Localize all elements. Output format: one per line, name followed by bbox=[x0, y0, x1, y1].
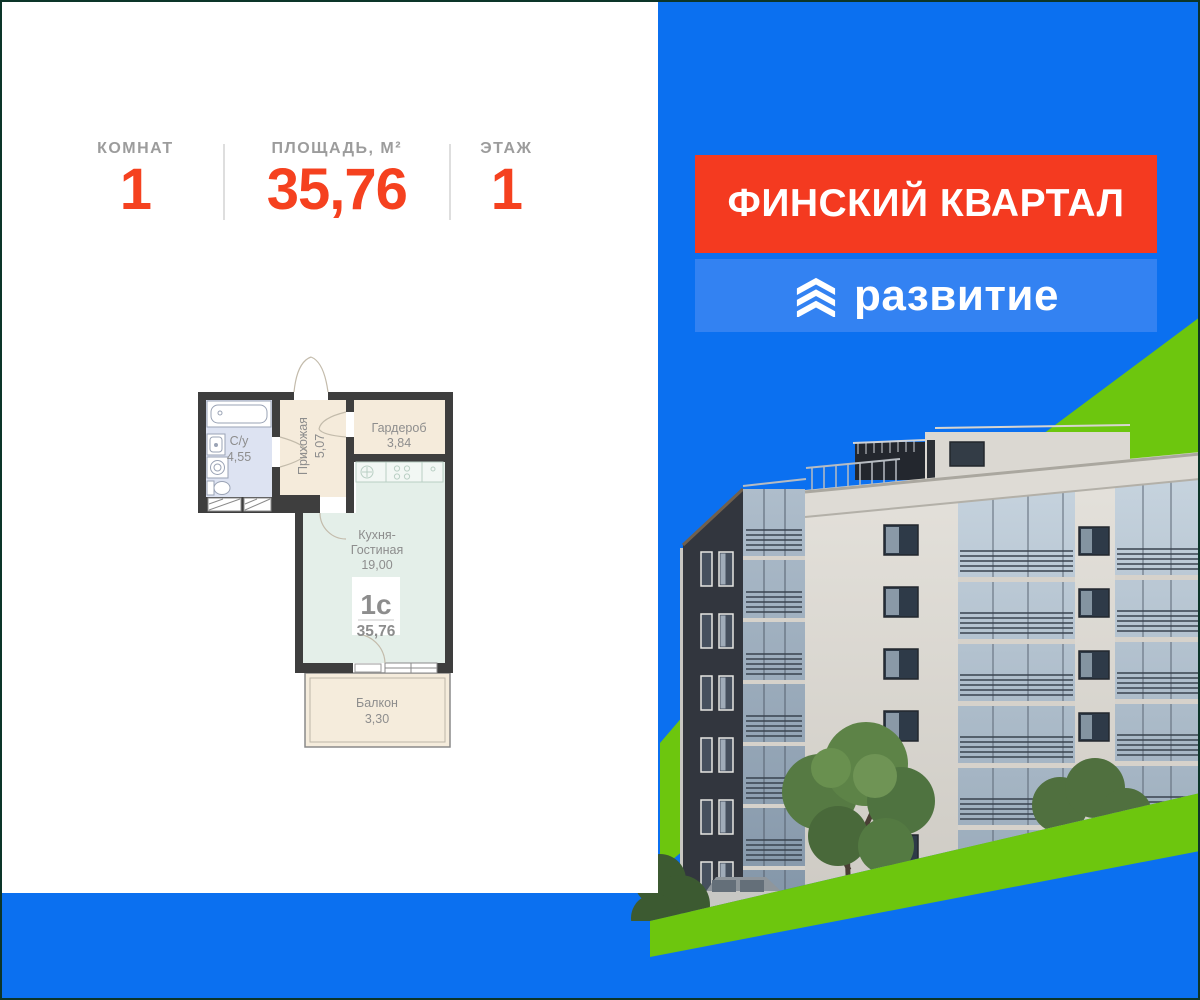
stat-floor-value: 1 bbox=[443, 161, 570, 219]
developer-banner: развитие bbox=[695, 259, 1157, 332]
room-area: 3,84 bbox=[387, 436, 411, 450]
room-area: 3,30 bbox=[365, 712, 389, 726]
stat-rooms-value: 1 bbox=[40, 161, 231, 219]
balcony-window bbox=[355, 663, 437, 673]
room-label: Балкон bbox=[356, 696, 398, 710]
shaft-hatch bbox=[208, 498, 271, 511]
room-balcony bbox=[305, 673, 450, 747]
apartment-total-area: 35,76 bbox=[357, 623, 396, 640]
room-area: 5,07 bbox=[313, 434, 327, 458]
triple-chevron-up-icon bbox=[793, 275, 839, 317]
stats-divider bbox=[223, 144, 225, 220]
project-name-banner: ФИНСКИЙ КВАРТАЛ bbox=[695, 155, 1157, 253]
stat-rooms-label: КОМНАТ bbox=[40, 140, 231, 158]
room-area: 19,00 bbox=[361, 558, 392, 572]
stat-area-value: 35,76 bbox=[231, 161, 443, 219]
developer-name: развитие bbox=[854, 271, 1059, 321]
stat-floor-label: ЭТАЖ bbox=[443, 140, 570, 158]
room-label: С/у bbox=[230, 434, 250, 448]
apartment-badge: 1с 35,76 bbox=[352, 577, 400, 640]
left-panel: КОМНАТ 1 ПЛОЩАДЬ, М² 35,76 ЭТАЖ 1 bbox=[2, 2, 658, 893]
project-name: ФИНСКИЙ КВАРТАЛ bbox=[728, 182, 1125, 226]
flyer-root: КОМНАТ 1 ПЛОЩАДЬ, М² 35,76 ЭТАЖ 1 bbox=[0, 0, 1200, 1000]
floor-plan: С/у 4,55 Прихожая 5,07 Гардероб 3,84 Кух… bbox=[193, 346, 463, 751]
stats-bar: КОМНАТ 1 ПЛОЩАДЬ, М² 35,76 ЭТАЖ 1 bbox=[40, 140, 570, 219]
kitchen-counter bbox=[356, 462, 443, 482]
stat-area-label: ПЛОЩАДЬ, М² bbox=[231, 140, 443, 158]
stat-area: ПЛОЩАДЬ, М² 35,76 bbox=[231, 140, 443, 219]
room-area: 4,55 bbox=[227, 450, 251, 464]
stat-floor: ЭТАЖ 1 bbox=[443, 140, 570, 219]
room-label: Гостиная bbox=[351, 543, 403, 557]
room-label: Гардероб bbox=[372, 421, 427, 435]
apartment-type: 1с bbox=[360, 589, 391, 620]
room-label: Прихожая bbox=[296, 417, 310, 475]
stats-divider bbox=[449, 144, 451, 220]
room-label: Кухня- bbox=[358, 528, 396, 542]
stat-rooms: КОМНАТ 1 bbox=[40, 140, 231, 219]
